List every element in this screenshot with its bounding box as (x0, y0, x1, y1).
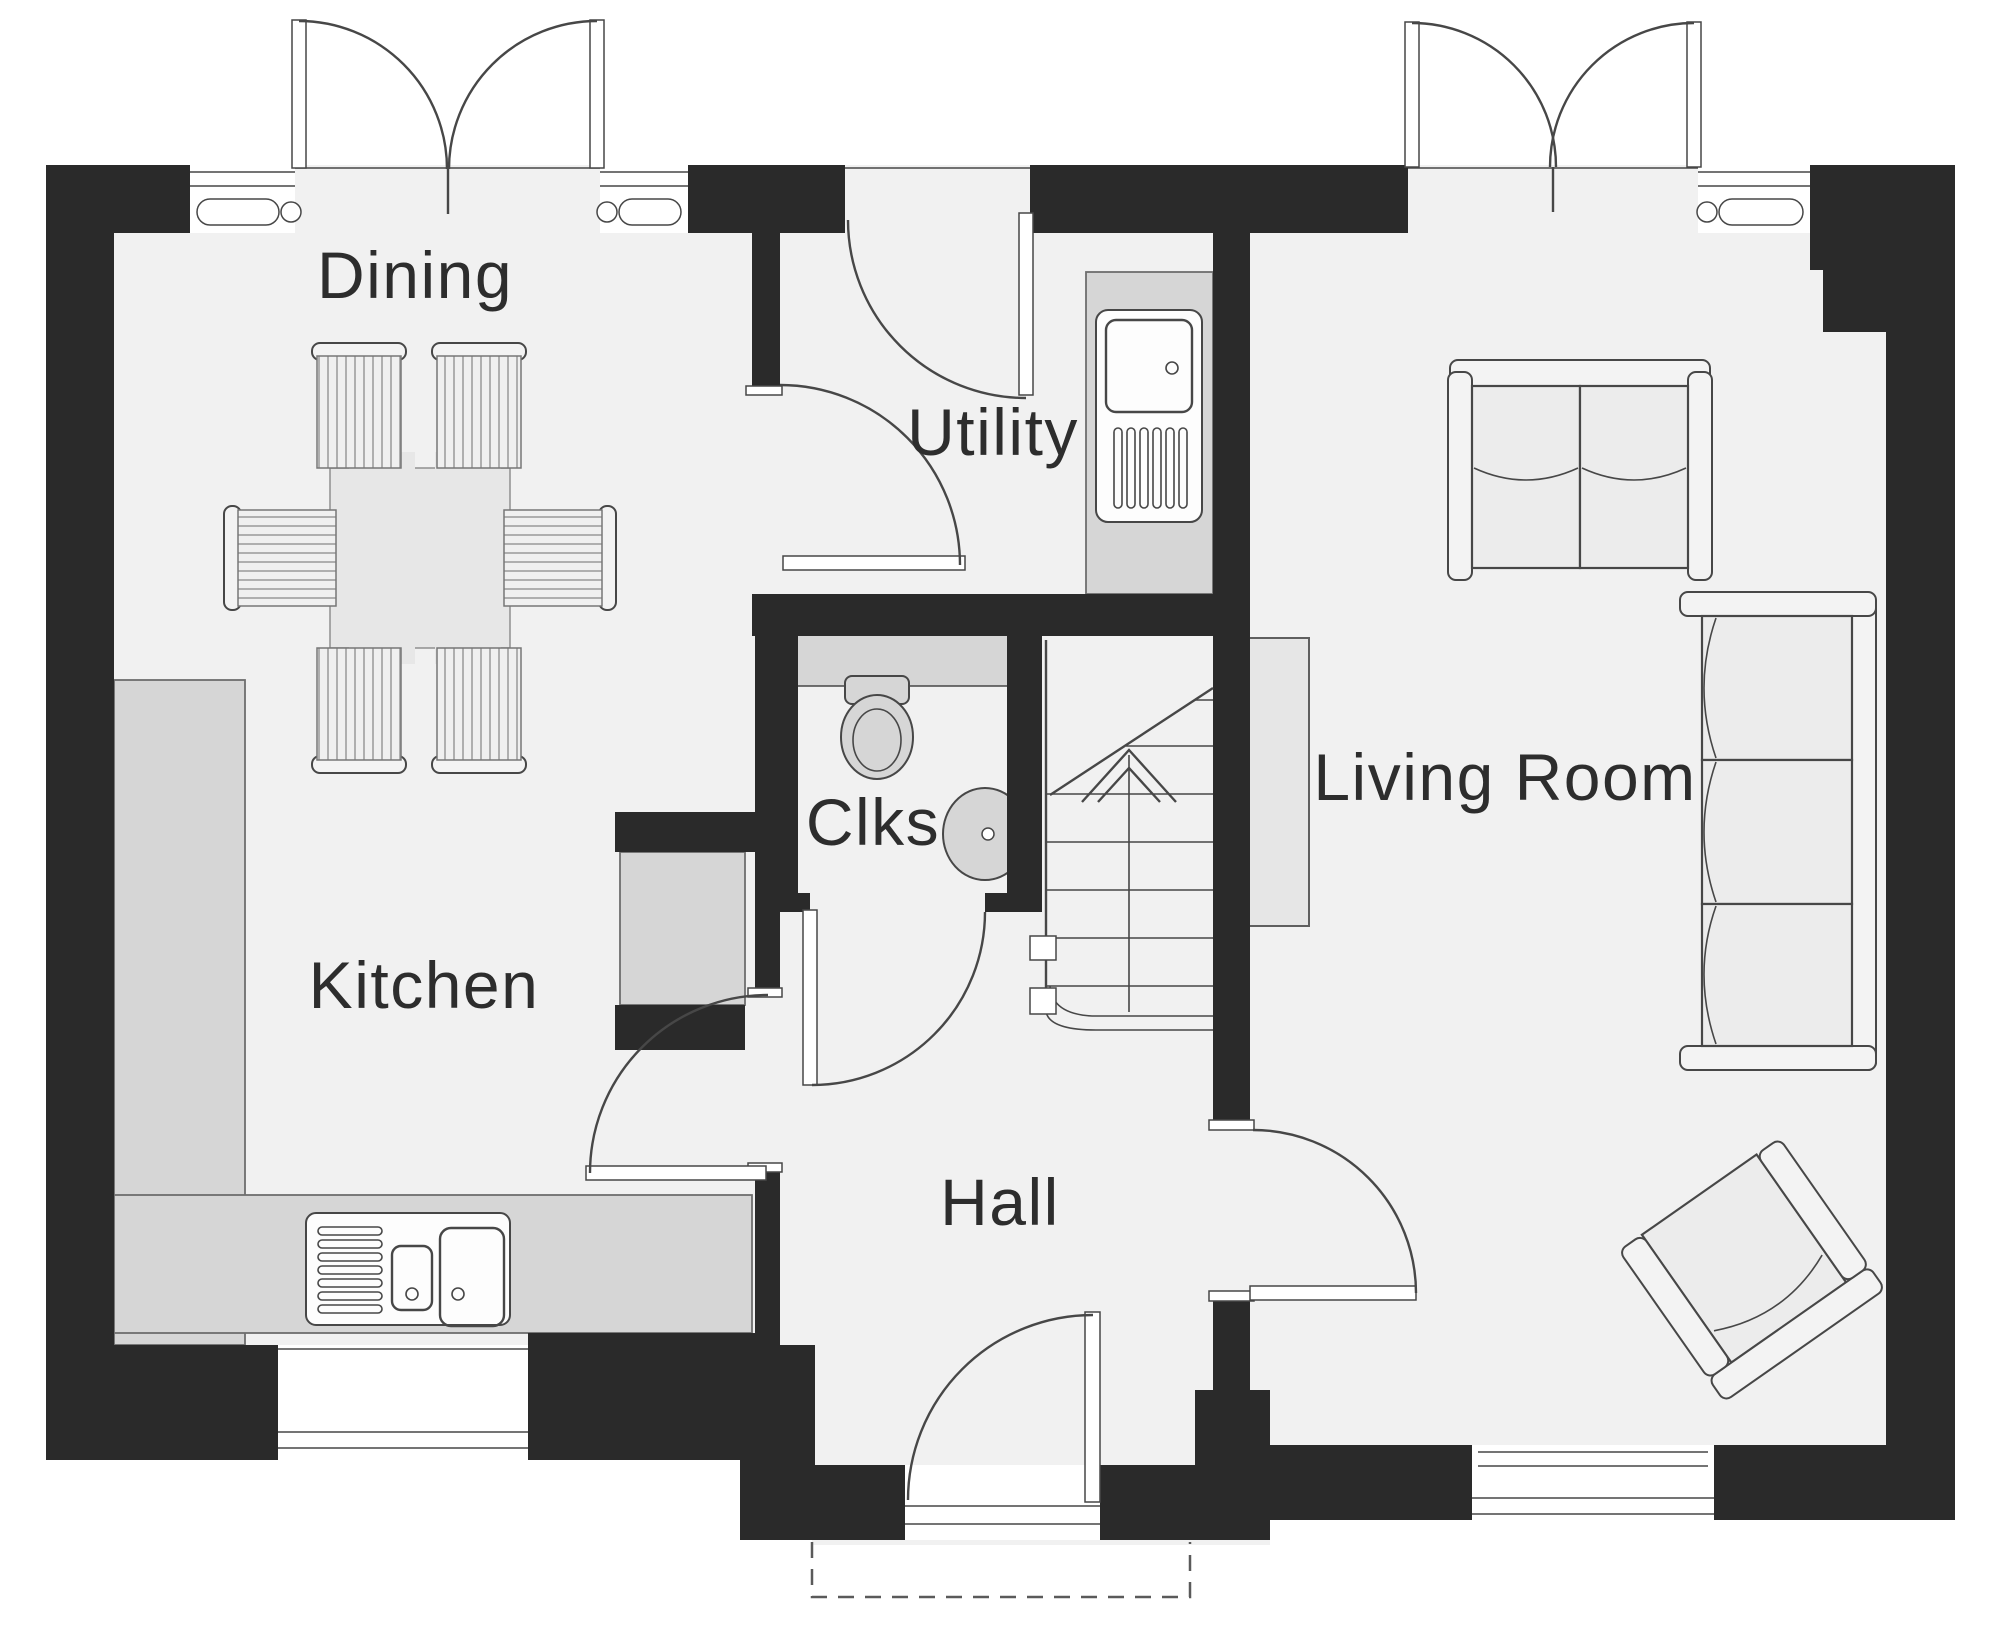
newel-post (1030, 988, 1056, 1014)
dining-chair (432, 648, 526, 773)
dining-chair (432, 343, 526, 468)
window-dining-2 (597, 165, 688, 233)
dining-chair (224, 506, 336, 610)
radiator (597, 199, 681, 225)
window-dining (190, 165, 301, 233)
kitchen-unit (620, 852, 745, 1005)
radiator (197, 199, 301, 225)
window-living (1697, 165, 1810, 233)
dining-table (314, 452, 526, 664)
room-label-utility: Utility (907, 395, 1079, 469)
floor-plan-page: Dining Utility Clks Kitchen Hall Living … (0, 0, 2000, 1632)
room-label-living: Living Room (1313, 740, 1696, 814)
dining-chair (504, 506, 616, 610)
newel-post (1030, 936, 1056, 960)
porch-outline (812, 1542, 1190, 1597)
floor-plan: Dining Utility Clks Kitchen Hall Living … (0, 0, 2000, 1632)
tv-unit (1247, 638, 1309, 926)
window-living-front (1472, 1445, 1714, 1520)
dining-chair (312, 343, 406, 468)
toilet (841, 676, 913, 779)
sofa-two-seater (1448, 360, 1712, 580)
room-label-hall: Hall (940, 1165, 1060, 1239)
utility-sink-unit (1086, 272, 1213, 594)
sofa-three-seater (1680, 592, 1876, 1070)
room-label-clks: Clks (806, 785, 940, 859)
room-label-dining: Dining (317, 238, 513, 312)
dining-chair (312, 648, 406, 773)
window-kitchen (278, 1345, 528, 1460)
room-label-kitchen: Kitchen (309, 948, 540, 1022)
kitchen-sink (306, 1213, 510, 1326)
